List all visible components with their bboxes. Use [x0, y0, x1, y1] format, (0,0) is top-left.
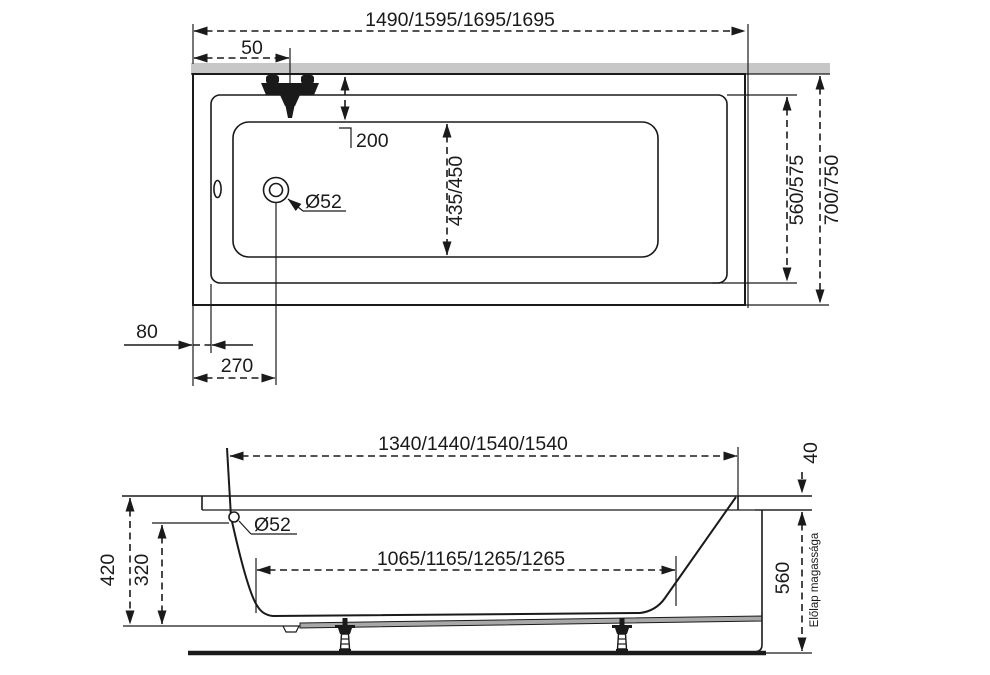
support-board	[300, 616, 762, 628]
dim-rim-edge: 80	[124, 321, 253, 345]
overall-length-label: 1490/1595/1695/1695	[365, 9, 555, 31]
dim-inner-depth: 320	[131, 525, 162, 624]
rim-edge-label: 80	[136, 321, 158, 343]
side-view: Ø52	[97, 433, 822, 653]
rim-height-label: 40	[800, 442, 822, 464]
panel-height-caption: Előlap magassága	[809, 532, 821, 627]
dim-overall-length: 1490/1595/1695/1695	[194, 9, 745, 31]
bathtub-technical-drawing: Ø52 1490/1595/1695/1695 50 200	[0, 0, 990, 675]
basin-width-label: 435/450	[445, 156, 467, 227]
top-view: Ø52 1490/1595/1695/1695 50 200	[124, 9, 843, 386]
dim-inner-length-top: 1340/1440/1540/1540	[230, 433, 737, 456]
rim-inner-width-label: 560/575	[786, 155, 808, 226]
drain-diameter-side-label: Ø52	[254, 514, 291, 536]
bottom-recess	[283, 626, 299, 632]
drain-side: Ø52	[229, 512, 297, 536]
dim-inner-length-bottom: 1065/1165/1265/1265	[257, 548, 675, 570]
dim-faucet-offset: 50	[194, 37, 289, 59]
basin-inset-label: 200	[356, 130, 389, 152]
inner-depth-label: 320	[131, 554, 153, 587]
front-panel-edge	[753, 510, 762, 652]
inner-length-bottom-label: 1065/1165/1265/1265	[377, 548, 565, 570]
inner-length-top-label: 1340/1440/1540/1540	[378, 433, 568, 455]
faucet-offset-label: 50	[241, 37, 263, 59]
dim-panel-height: 560 Előlap magassága	[772, 512, 821, 651]
drain-diameter-label: Ø52	[305, 191, 342, 213]
dim-outer-height: 420	[97, 498, 130, 624]
overflow-hole	[214, 181, 221, 198]
wall-strip	[191, 63, 830, 74]
dim-rim-inner-width: 560/575	[786, 97, 808, 281]
panel-height-label: 560	[772, 562, 794, 595]
dim-rim-height: 40	[800, 442, 822, 493]
overall-width-label: 700/750	[821, 155, 843, 226]
tub-profile	[227, 448, 736, 616]
technical-drawing-page: Ø52 1490/1595/1695/1695 50 200	[0, 0, 990, 675]
dim-overall-width: 700/750	[820, 76, 843, 303]
dim-drain-offset: 270	[194, 355, 275, 378]
drain-offset-label: 270	[221, 355, 254, 377]
outer-height-label: 420	[97, 554, 119, 587]
